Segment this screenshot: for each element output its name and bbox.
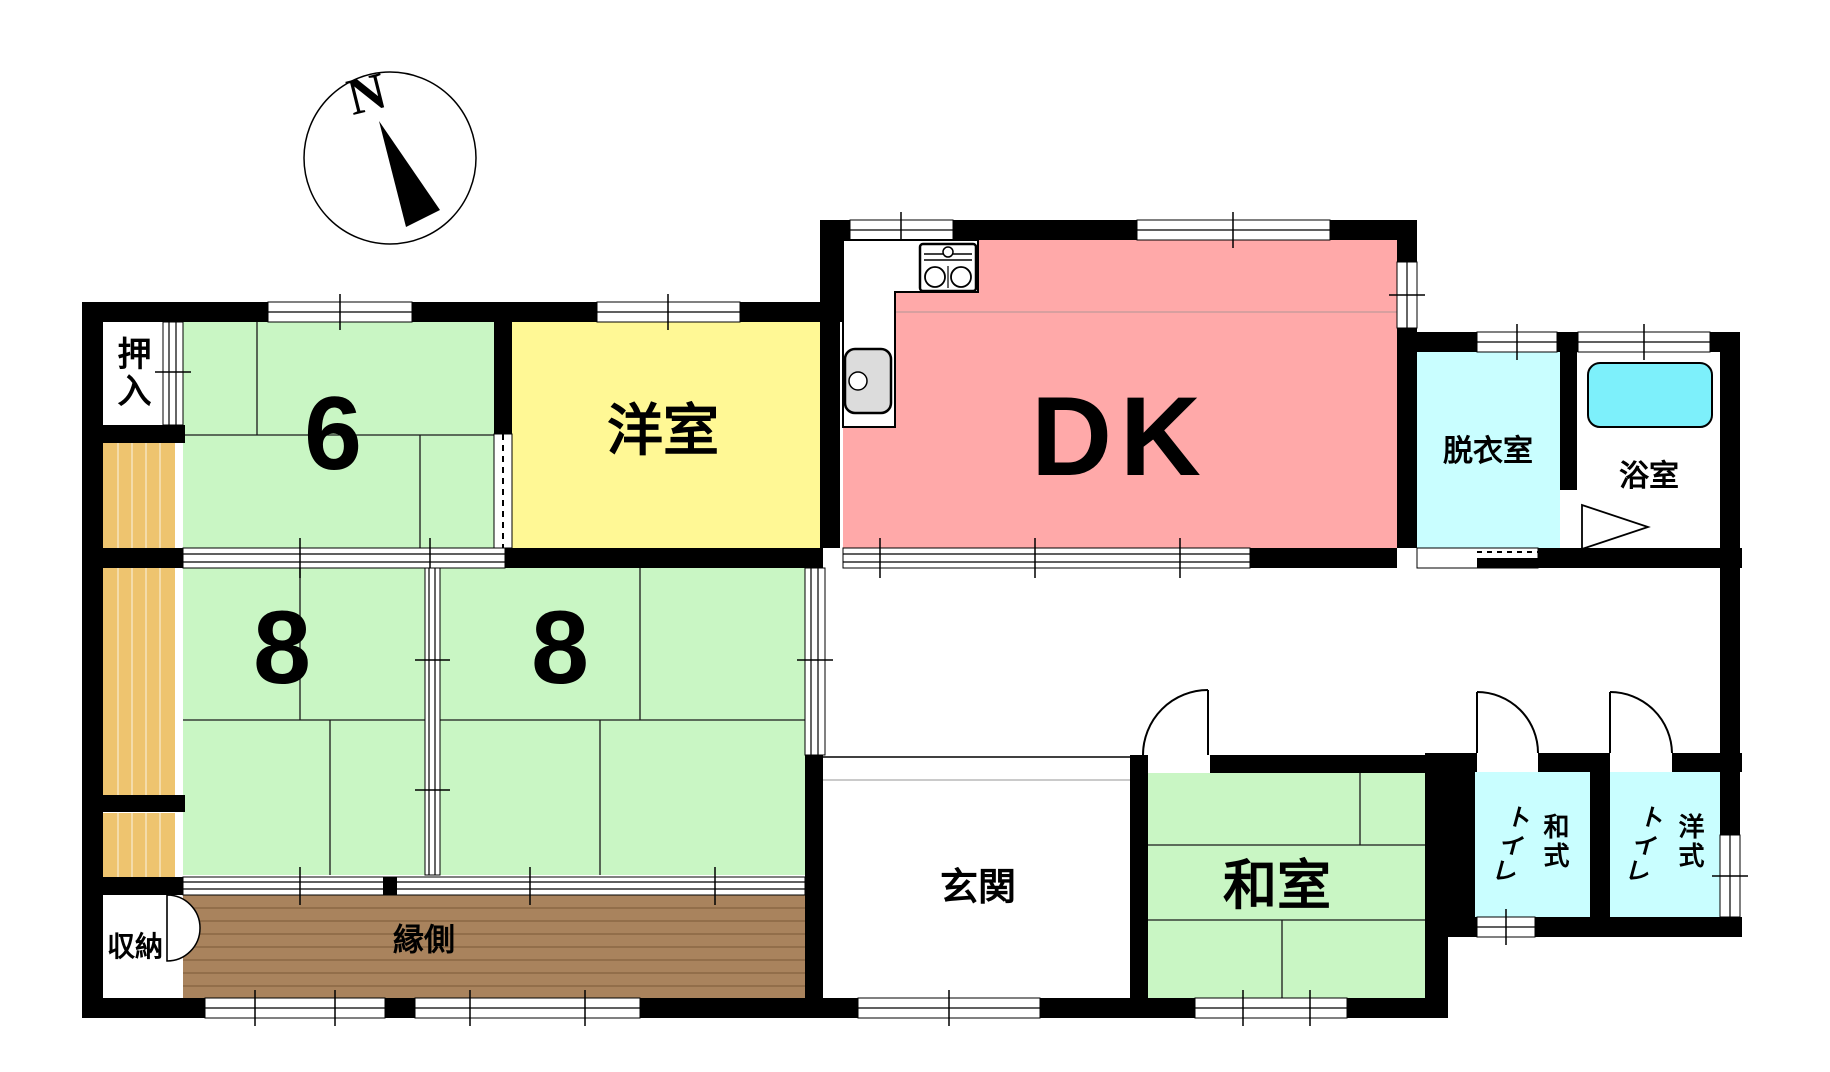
room-label-genkan: 玄関 (940, 869, 1016, 907)
wall-left (82, 302, 103, 1018)
wall-corridor-chunk-2 (82, 877, 185, 895)
washitsu-door-arc (1143, 690, 1208, 755)
room-toilet-japanese-floor (1475, 772, 1590, 917)
toilet-western-door-arc (1610, 692, 1672, 753)
wall-youshitsu-dk (820, 322, 840, 548)
room-label-youshitsu: 洋室 (607, 403, 719, 459)
sink-icon (845, 349, 891, 413)
room-label-engawa: 縁側 (393, 925, 455, 956)
corridor-floor-3 (103, 813, 175, 877)
floor-plan: N 押入 6 洋室 DK 脱衣室 浴室 8 8 玄関 和室 縁側 収納 トイレ … (0, 0, 1830, 1072)
room-label-shuunou: 収納 (107, 933, 163, 961)
wall-washitsu-toilet (1425, 753, 1475, 937)
room-label-dk: DK (1031, 381, 1209, 493)
room-label-toilet-western-type: 洋式 (1677, 813, 1703, 871)
wall-mid-center (505, 548, 823, 568)
room-label-washitsu: 和室 (1223, 859, 1331, 913)
compass (304, 72, 476, 244)
wall-toilets-divider (1590, 772, 1610, 917)
room-label-6: 6 (304, 382, 362, 486)
room-label-8-left: 8 (253, 596, 311, 700)
wall-mid-dk-right (1250, 548, 1397, 568)
room-label-datsuishitsu: 脱衣室 (1443, 437, 1533, 467)
wall-corridor-chunk-1 (82, 795, 185, 812)
bathtub-icon (1588, 363, 1712, 427)
floor-plan-drawing (0, 0, 1830, 1072)
corridor-floor-2 (103, 568, 175, 795)
corridor-floor-1 (103, 443, 175, 548)
wall-washitsu-left (1130, 755, 1148, 1018)
wall-dk-left (820, 240, 843, 322)
room-toilet-western-floor (1610, 772, 1723, 917)
room-label-oshiire: 押入 (114, 336, 148, 410)
wall-mid-bath (1538, 548, 1742, 568)
room-label-yokushitsu: 浴室 (1619, 462, 1679, 492)
genkan-step (823, 757, 1130, 780)
stove-icon (920, 244, 976, 291)
toilet-japanese-door-arc (1477, 692, 1538, 753)
room-label-8-right: 8 (531, 596, 589, 700)
wall-bath-divider (1560, 352, 1577, 490)
wall-genkan-left (805, 755, 823, 1018)
wall-mid-left (82, 548, 183, 568)
wall-6-youshitsu (494, 322, 512, 434)
room-8-right-floor (440, 568, 805, 875)
wall-oshiire-bottom (82, 425, 185, 443)
room-label-toilet-japanese-type: 和式 (1542, 813, 1568, 871)
